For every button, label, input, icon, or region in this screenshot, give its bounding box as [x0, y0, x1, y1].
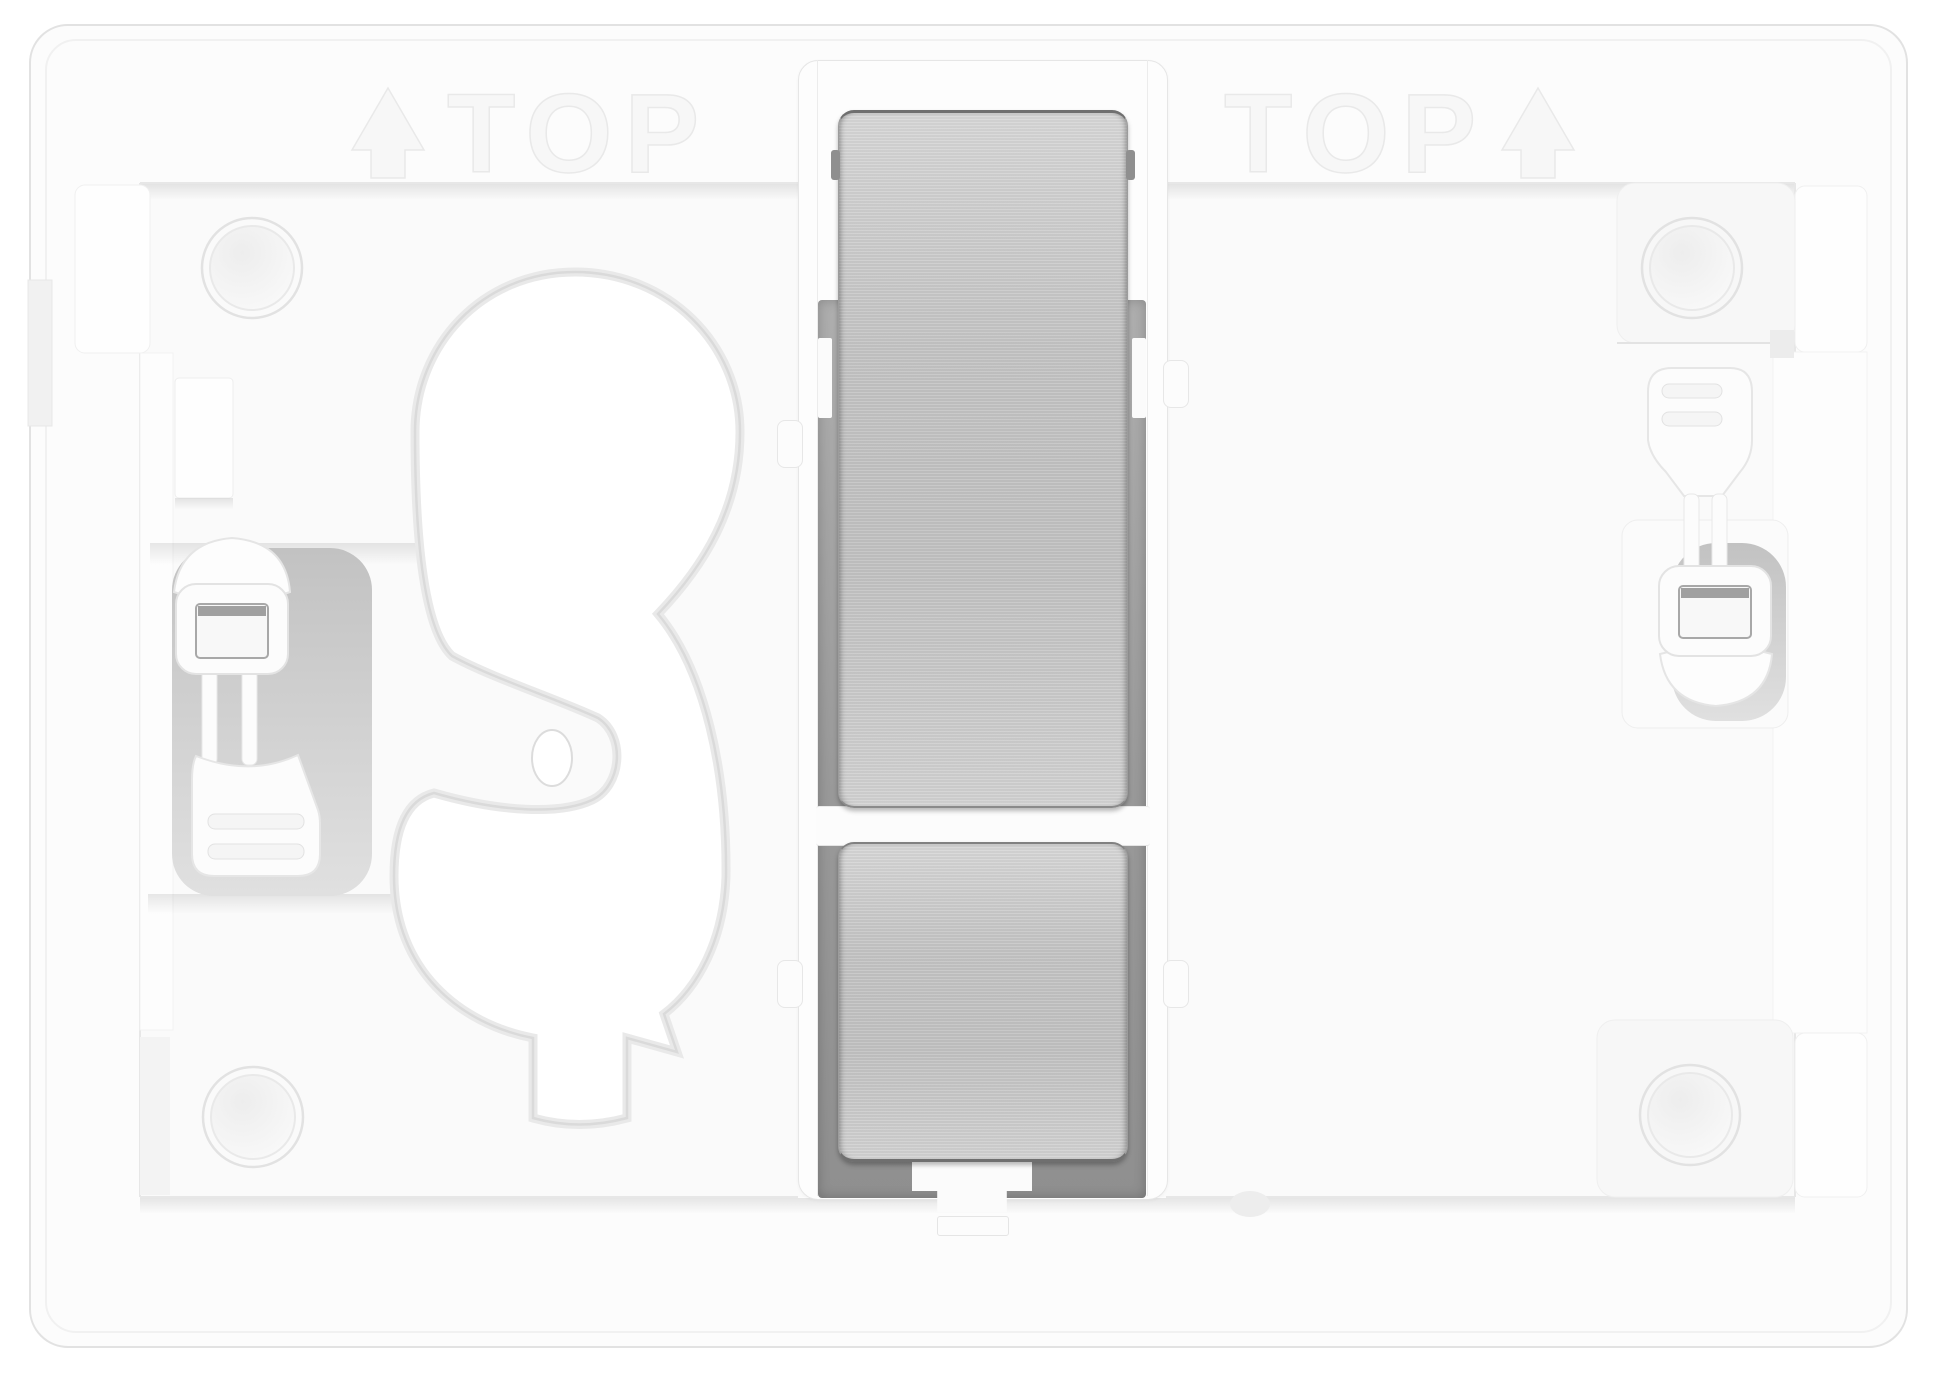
- aperture-slot-right: [1132, 338, 1146, 418]
- clip-prong: [242, 670, 257, 765]
- frame-side-nub: [777, 960, 803, 1008]
- screw-boss-bottom-left: [203, 1067, 303, 1167]
- frame-side-nub: [777, 420, 803, 468]
- clip-buckle-rim: [198, 606, 266, 616]
- left-raised-block: [175, 378, 233, 498]
- left-band-recess: [140, 1037, 170, 1195]
- clip-prong: [202, 670, 217, 765]
- aperture-slot-left: [818, 338, 832, 418]
- clip-paddle-slot: [1662, 412, 1722, 426]
- tab-screw-hole: [532, 730, 572, 786]
- clip-paddle-slot: [208, 844, 304, 859]
- module-rail-right: [1147, 60, 1148, 1196]
- rocker-pivot-pin-left: [831, 150, 840, 180]
- left-edge-notch: [28, 280, 52, 426]
- rocker-pivot-pin-right: [1126, 150, 1135, 180]
- left-block-shadow: [175, 498, 233, 510]
- steel-rocker-module-top: [838, 110, 1128, 808]
- frame-side-nub: [1163, 960, 1189, 1008]
- frame-side-nub: [1163, 360, 1189, 408]
- bottom-latch-catch: [937, 1216, 1009, 1236]
- left-band-pillar: [75, 185, 150, 353]
- right-band-pillar-top: [1795, 186, 1867, 352]
- bottom-band-bump: [1230, 1191, 1270, 1217]
- clip-paddle-slot: [1662, 384, 1722, 398]
- screw-boss-top-left: [202, 218, 302, 318]
- clip-buckle-rim: [1681, 588, 1749, 598]
- screw-boss-top-right: [1642, 218, 1742, 318]
- product-photo-grid-frame: TOP TOP: [0, 0, 1937, 1373]
- module-divider-bar: [816, 806, 1150, 846]
- screw-boss-bottom-right: [1640, 1065, 1740, 1165]
- top-label-right: TOP: [1224, 71, 1488, 196]
- panel-notch: [1770, 330, 1794, 358]
- top-label-left: TOP: [447, 71, 711, 196]
- steel-rocker-module-bottom: [838, 842, 1128, 1162]
- left-step-shadow-lower: [148, 894, 402, 914]
- clip-paddle-slot: [208, 814, 304, 829]
- right-band-pillar-bottom: [1795, 1033, 1867, 1197]
- left-band-strip: [140, 353, 173, 1030]
